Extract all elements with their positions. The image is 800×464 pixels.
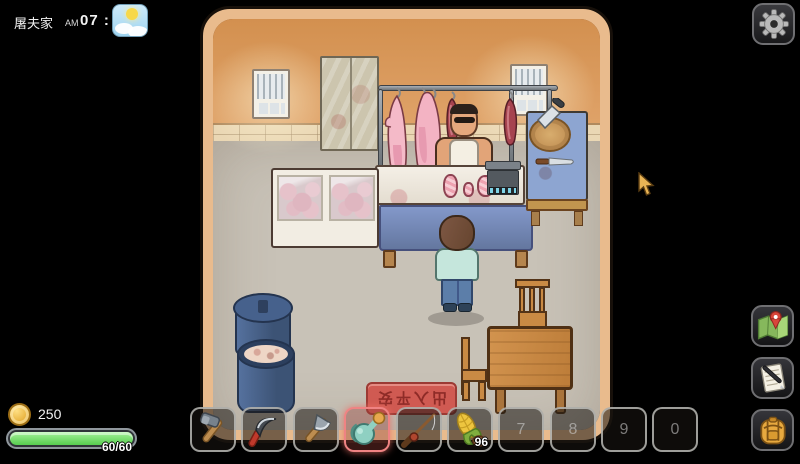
backpack-button[interactable] (751, 409, 794, 451)
chair-back (515, 279, 550, 329)
weather-icon[interactable] (112, 4, 148, 37)
butcher-npc[interactable] (433, 101, 495, 167)
hotbar-slot-1[interactable] (190, 407, 236, 452)
display-freezer (271, 168, 379, 248)
doormat-text: 出入平安 (375, 388, 447, 409)
fishing-rod-icon (399, 410, 439, 450)
sickle-icon (244, 410, 284, 450)
player-character (431, 215, 483, 319)
axe-icon (296, 410, 336, 450)
slot-number: 8 (569, 421, 578, 439)
game-screen: 出入平安 屠夫家 AM 07 : 40 (0, 0, 800, 464)
meat-cut (463, 182, 474, 197)
knife-icon (535, 155, 577, 169)
coin-amount: 250 (38, 406, 61, 422)
meat-cut (443, 174, 458, 198)
stall-leg (383, 250, 396, 268)
coin-icon (8, 403, 31, 426)
settings-button[interactable] (752, 3, 795, 45)
butcher-tank-top (449, 139, 479, 167)
journal-button[interactable] (751, 357, 794, 399)
player-shirt (435, 248, 479, 281)
item-count-badge: 96 (475, 435, 488, 449)
health-bar: 60/60 (6, 428, 137, 449)
hotbar-slot-7[interactable]: 7 (498, 407, 544, 452)
backpack-icon (755, 412, 791, 448)
hanging-meat-slab (501, 91, 520, 149)
hotbar-slot-9[interactable]: 9 (601, 407, 647, 452)
hammer-icon (193, 410, 233, 450)
butcher-hair (450, 104, 478, 114)
sun-icon (126, 8, 138, 20)
meat-rack-post (378, 89, 383, 167)
map-icon (755, 308, 791, 344)
notebook-icon (755, 360, 791, 396)
window-blinds (257, 74, 285, 99)
counter-scale (485, 161, 521, 201)
hotbar-slot-8[interactable]: 8 (550, 407, 596, 452)
player-head (439, 215, 475, 251)
gear-icon (757, 7, 791, 41)
player-jeans (441, 279, 473, 306)
mouse-cursor (637, 172, 657, 200)
cloud-icon (128, 26, 148, 37)
hotbar-slot-6[interactable]: 96 (447, 407, 493, 452)
location-label: 屠夫家 (14, 13, 53, 32)
hotbar-slot-10[interactable]: 0 (652, 407, 698, 452)
player-shoe (443, 303, 457, 312)
cleaver-icon (535, 98, 567, 136)
health-value: 60/60 (102, 440, 132, 454)
hotbar-slot-4-selected[interactable] (344, 407, 390, 452)
back-door[interactable] (320, 56, 379, 151)
player-shoe (458, 303, 472, 312)
stall-leg (515, 250, 528, 268)
window-panes (257, 100, 285, 114)
dining-table (487, 326, 573, 390)
watering-can-icon (347, 410, 387, 450)
hotbar-slot-2[interactable] (241, 407, 287, 452)
slot-number: 0 (671, 421, 680, 439)
slot-number: 9 (620, 421, 629, 439)
map-button[interactable] (751, 305, 794, 347)
slot-number: 7 (517, 421, 526, 439)
room-frame: 出入平安 (200, 6, 613, 443)
butcher-sunglasses (454, 117, 475, 123)
player-shadow (428, 311, 484, 326)
window-left (252, 69, 290, 119)
hotbar-slot-3[interactable] (293, 407, 339, 452)
barrel-handle (258, 300, 268, 313)
hotbar-slot-5[interactable] (396, 407, 442, 452)
time-meridiem: AM (65, 18, 79, 28)
chair-side (461, 337, 487, 401)
barrel-contents (244, 345, 288, 363)
butcher-shop-room: 出入平安 (213, 19, 600, 430)
